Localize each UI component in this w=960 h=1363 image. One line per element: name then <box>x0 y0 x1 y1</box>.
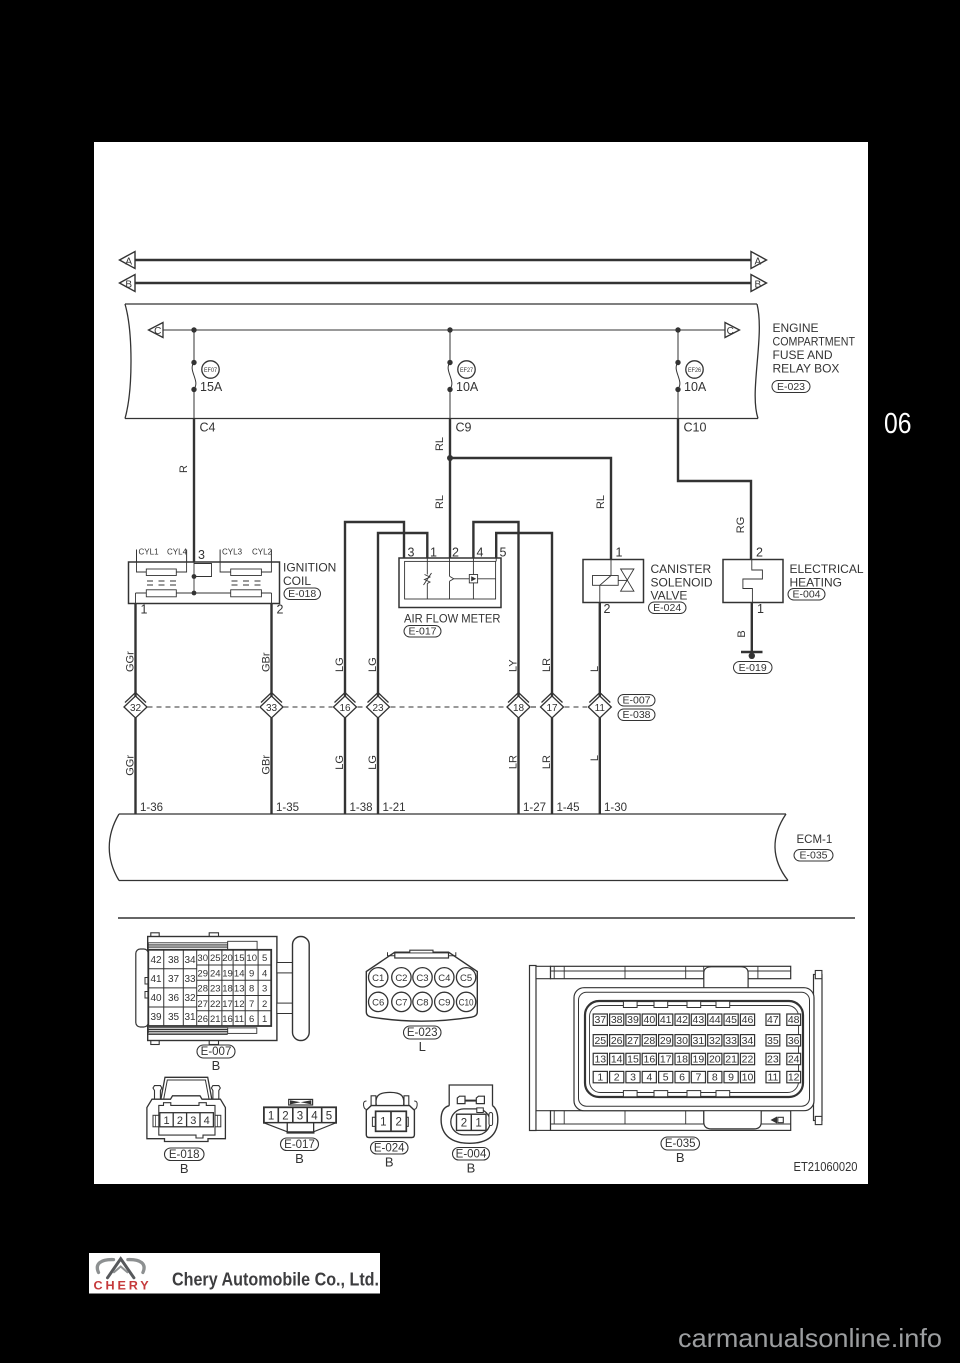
svg-text:23: 23 <box>210 984 221 995</box>
svg-text:E-004: E-004 <box>456 1149 487 1161</box>
svg-text:A: A <box>125 256 132 267</box>
svg-text:43: 43 <box>693 1014 705 1026</box>
svg-text:5: 5 <box>326 1110 332 1122</box>
svg-text:22: 22 <box>210 999 221 1010</box>
svg-text:33: 33 <box>184 974 196 985</box>
svg-text:E-018: E-018 <box>169 1149 200 1161</box>
svg-text:2: 2 <box>614 1072 620 1084</box>
svg-text:41: 41 <box>150 974 162 985</box>
svg-text:LG: LG <box>367 755 379 770</box>
svg-text:36: 36 <box>788 1035 800 1047</box>
svg-text:ECM-1: ECM-1 <box>797 834 833 846</box>
svg-text:C1: C1 <box>372 973 384 984</box>
svg-text:23: 23 <box>372 703 384 714</box>
svg-text:C6: C6 <box>372 997 384 1008</box>
svg-text:EF26: EF26 <box>688 367 701 374</box>
svg-text:RG: RG <box>735 517 747 534</box>
svg-text:C10: C10 <box>459 997 474 1008</box>
svg-text:2: 2 <box>461 1117 467 1129</box>
svg-text:2: 2 <box>277 603 284 617</box>
svg-text:E-024: E-024 <box>653 602 681 614</box>
svg-text:ENGINE: ENGINE <box>773 321 819 335</box>
svg-text:1: 1 <box>757 602 764 616</box>
svg-text:46: 46 <box>742 1014 754 1026</box>
svg-text:2: 2 <box>282 1110 288 1122</box>
svg-text:C8: C8 <box>416 997 428 1008</box>
svg-text:20: 20 <box>222 953 233 964</box>
svg-text:GBr: GBr <box>261 652 273 672</box>
svg-text:C10: C10 <box>684 421 707 435</box>
svg-text:EF07: EF07 <box>204 367 217 374</box>
svg-text:42: 42 <box>676 1014 688 1026</box>
svg-text:L: L <box>589 755 601 761</box>
svg-text:3: 3 <box>630 1072 636 1084</box>
svg-text:B: B <box>125 279 132 290</box>
svg-text:C: C <box>727 326 734 337</box>
svg-text:10A: 10A <box>456 380 479 394</box>
svg-text:FUSE AND: FUSE AND <box>773 348 833 362</box>
svg-text:RELAY BOX: RELAY BOX <box>773 362 840 376</box>
svg-text:17: 17 <box>546 703 558 714</box>
svg-text:16: 16 <box>222 1014 233 1025</box>
svg-text:B: B <box>212 1058 221 1073</box>
svg-text:GGr: GGr <box>125 651 137 672</box>
svg-text:2: 2 <box>395 1116 401 1128</box>
svg-text:18: 18 <box>513 703 525 714</box>
svg-text:29: 29 <box>197 968 208 979</box>
svg-text:LR: LR <box>541 658 553 672</box>
svg-text:1: 1 <box>380 1116 386 1128</box>
svg-text:1: 1 <box>475 1117 481 1129</box>
svg-text:47: 47 <box>767 1014 779 1026</box>
svg-text:33: 33 <box>725 1035 737 1047</box>
svg-text:1: 1 <box>616 546 623 560</box>
svg-text:4: 4 <box>204 1115 210 1127</box>
svg-text:E-023: E-023 <box>777 381 805 393</box>
svg-text:E-007: E-007 <box>201 1046 232 1058</box>
svg-text:30: 30 <box>197 953 208 964</box>
svg-text:C5: C5 <box>460 973 472 984</box>
svg-text:32: 32 <box>130 703 142 714</box>
svg-text:carmanualsonline.info: carmanualsonline.info <box>678 1323 942 1353</box>
svg-text:LG: LG <box>367 657 379 672</box>
svg-text:10: 10 <box>742 1072 754 1084</box>
svg-text:1: 1 <box>597 1072 603 1084</box>
svg-text:RL: RL <box>434 495 446 509</box>
svg-text:LG: LG <box>334 657 346 672</box>
svg-text:COIL: COIL <box>283 574 311 588</box>
svg-text:1-36: 1-36 <box>140 802 163 814</box>
svg-text:31: 31 <box>693 1035 705 1047</box>
svg-text:26: 26 <box>611 1035 623 1047</box>
svg-text:R: R <box>178 465 190 473</box>
svg-text:35: 35 <box>767 1035 779 1047</box>
svg-text:RL: RL <box>595 495 607 509</box>
svg-text:34: 34 <box>184 955 196 966</box>
svg-text:CYL4: CYL4 <box>167 548 188 557</box>
svg-text:26: 26 <box>197 1014 208 1025</box>
svg-text:E-017: E-017 <box>408 626 436 638</box>
svg-text:Chery Automobile Co., Ltd.: Chery Automobile Co., Ltd. <box>172 1270 379 1290</box>
svg-text:B: B <box>385 1155 394 1170</box>
svg-text:19: 19 <box>222 968 233 979</box>
svg-text:8: 8 <box>249 984 254 995</box>
svg-text:VALVE: VALVE <box>651 589 688 603</box>
svg-text:C3: C3 <box>416 973 428 984</box>
svg-text:37: 37 <box>594 1014 606 1026</box>
svg-text:20: 20 <box>709 1054 721 1066</box>
svg-text:44: 44 <box>709 1014 721 1026</box>
svg-text:CYL2: CYL2 <box>252 548 273 557</box>
svg-text:32: 32 <box>709 1035 721 1047</box>
svg-text:38: 38 <box>611 1014 623 1026</box>
svg-text:13: 13 <box>234 984 245 995</box>
svg-text:E-017: E-017 <box>284 1139 315 1151</box>
svg-text:14: 14 <box>234 968 245 979</box>
svg-text:EF27: EF27 <box>460 367 473 374</box>
svg-text:3: 3 <box>198 548 205 562</box>
svg-text:21: 21 <box>725 1054 737 1066</box>
svg-text:11: 11 <box>767 1072 778 1084</box>
svg-text:9: 9 <box>249 968 254 979</box>
svg-text:15A: 15A <box>200 380 223 394</box>
svg-text:B: B <box>736 630 748 637</box>
svg-text:16: 16 <box>644 1054 656 1066</box>
svg-text:3: 3 <box>190 1115 196 1127</box>
svg-text:8: 8 <box>712 1072 718 1084</box>
svg-text:CYL1: CYL1 <box>139 548 160 557</box>
svg-text:15: 15 <box>234 953 245 964</box>
svg-text:27: 27 <box>627 1035 639 1047</box>
svg-text:3: 3 <box>297 1110 303 1122</box>
svg-text:B: B <box>180 1161 189 1176</box>
svg-text:25: 25 <box>210 953 221 964</box>
svg-text:06: 06 <box>884 408 912 440</box>
svg-text:CHERY: CHERY <box>94 1281 152 1293</box>
svg-text:36: 36 <box>168 993 180 1004</box>
svg-text:B: B <box>295 1151 304 1166</box>
svg-text:17: 17 <box>222 999 233 1010</box>
svg-text:3: 3 <box>262 984 267 995</box>
svg-text:29: 29 <box>660 1035 672 1047</box>
svg-text:40: 40 <box>150 993 162 1004</box>
svg-text:24: 24 <box>210 968 221 979</box>
svg-text:B: B <box>467 1161 476 1176</box>
svg-text:IGNITION: IGNITION <box>283 561 336 575</box>
svg-text:11: 11 <box>595 703 606 714</box>
svg-text:33: 33 <box>266 703 278 714</box>
svg-text:B: B <box>754 279 761 290</box>
svg-text:LR: LR <box>541 755 553 769</box>
svg-text:E-038: E-038 <box>622 709 650 721</box>
svg-text:1-45: 1-45 <box>557 802 580 814</box>
svg-text:E-035: E-035 <box>799 850 827 862</box>
svg-text:15: 15 <box>627 1054 639 1066</box>
svg-text:C7: C7 <box>395 997 407 1008</box>
svg-text:14: 14 <box>611 1054 623 1066</box>
svg-text:HEATING: HEATING <box>790 575 842 589</box>
svg-text:2: 2 <box>604 602 611 616</box>
svg-text:28: 28 <box>197 984 208 995</box>
svg-text:18: 18 <box>222 984 233 995</box>
svg-text:21: 21 <box>210 1014 221 1025</box>
svg-text:1: 1 <box>141 603 148 617</box>
svg-text:1-27: 1-27 <box>523 802 546 814</box>
svg-text:38: 38 <box>168 955 180 966</box>
svg-text:23: 23 <box>767 1054 779 1066</box>
svg-text:13: 13 <box>594 1054 606 1066</box>
svg-text:24: 24 <box>788 1054 800 1066</box>
svg-text:SOLENOID: SOLENOID <box>651 575 713 589</box>
svg-text:41: 41 <box>660 1014 672 1026</box>
svg-text:4: 4 <box>262 968 267 979</box>
svg-text:E-018: E-018 <box>288 588 316 600</box>
svg-text:7: 7 <box>695 1072 701 1084</box>
svg-text:CYL3: CYL3 <box>222 548 243 557</box>
svg-text:E-004: E-004 <box>792 589 820 601</box>
svg-text:1: 1 <box>163 1115 169 1127</box>
svg-text:6: 6 <box>679 1072 685 1084</box>
svg-text:ELECTRICAL: ELECTRICAL <box>790 562 864 576</box>
svg-text:39: 39 <box>150 1012 162 1023</box>
svg-text:11: 11 <box>234 1014 244 1025</box>
svg-text:ET21060020: ET21060020 <box>794 1160 858 1174</box>
svg-text:B: B <box>676 1150 685 1165</box>
svg-text:5: 5 <box>262 953 267 964</box>
svg-text:34: 34 <box>742 1035 754 1047</box>
svg-text:12: 12 <box>788 1072 800 1084</box>
svg-text:A: A <box>754 256 761 267</box>
svg-text:7: 7 <box>249 999 254 1010</box>
svg-text:GBr: GBr <box>261 755 273 775</box>
svg-text:9: 9 <box>728 1072 734 1084</box>
svg-text:RL: RL <box>434 437 446 451</box>
svg-text:10: 10 <box>246 953 257 964</box>
svg-text:17: 17 <box>660 1054 672 1066</box>
svg-text:C4: C4 <box>438 973 450 984</box>
svg-text:2: 2 <box>756 546 763 560</box>
svg-text:1-21: 1-21 <box>383 802 406 814</box>
svg-text:1-30: 1-30 <box>604 802 627 814</box>
svg-text:E-007: E-007 <box>622 695 650 707</box>
svg-text:6: 6 <box>249 1014 254 1025</box>
svg-text:37: 37 <box>168 974 180 985</box>
svg-text:25: 25 <box>594 1035 606 1047</box>
svg-text:10A: 10A <box>684 380 707 394</box>
svg-text:35: 35 <box>168 1012 180 1023</box>
svg-text:LY: LY <box>508 659 520 672</box>
svg-text:40: 40 <box>644 1014 656 1026</box>
svg-text:16: 16 <box>339 703 351 714</box>
svg-text:1-38: 1-38 <box>350 802 373 814</box>
svg-text:E-035: E-035 <box>665 1138 696 1150</box>
svg-text:2: 2 <box>262 999 267 1010</box>
svg-text:31: 31 <box>184 1012 196 1023</box>
svg-text:22: 22 <box>742 1054 754 1066</box>
svg-text:45: 45 <box>725 1014 737 1026</box>
svg-text:19: 19 <box>693 1054 705 1066</box>
svg-text:LR: LR <box>508 755 520 769</box>
svg-text:C9: C9 <box>438 997 450 1008</box>
svg-text:E-024: E-024 <box>374 1143 405 1155</box>
svg-text:1-35: 1-35 <box>276 802 299 814</box>
svg-text:1: 1 <box>268 1110 274 1122</box>
svg-text:CANISTER: CANISTER <box>651 562 712 576</box>
svg-text:LG: LG <box>334 755 346 770</box>
svg-text:E-019: E-019 <box>739 662 767 674</box>
svg-text:28: 28 <box>644 1035 656 1047</box>
svg-text:18: 18 <box>676 1054 688 1066</box>
svg-text:C4: C4 <box>200 421 216 435</box>
svg-text:L: L <box>419 1039 426 1054</box>
svg-text:C2: C2 <box>395 973 407 984</box>
svg-text:42: 42 <box>150 955 162 966</box>
svg-text:5: 5 <box>663 1072 669 1084</box>
svg-text:E-023: E-023 <box>407 1027 438 1039</box>
svg-text:L: L <box>589 666 601 672</box>
svg-text:1: 1 <box>262 1014 267 1025</box>
svg-text:C: C <box>154 326 161 337</box>
svg-text:48: 48 <box>788 1014 800 1026</box>
svg-text:4: 4 <box>311 1110 318 1122</box>
svg-text:30: 30 <box>676 1035 688 1047</box>
svg-text:AIR FLOW METER: AIR FLOW METER <box>404 612 501 626</box>
svg-text:COMPARTMENT: COMPARTMENT <box>773 335 856 349</box>
svg-text:2: 2 <box>177 1115 183 1127</box>
svg-text:C9: C9 <box>456 421 472 435</box>
svg-text:GGr: GGr <box>125 755 137 776</box>
svg-text:27: 27 <box>197 999 208 1010</box>
svg-text:4: 4 <box>646 1072 652 1084</box>
svg-text:32: 32 <box>184 993 196 1004</box>
svg-text:12: 12 <box>234 999 245 1010</box>
svg-text:39: 39 <box>627 1014 639 1026</box>
